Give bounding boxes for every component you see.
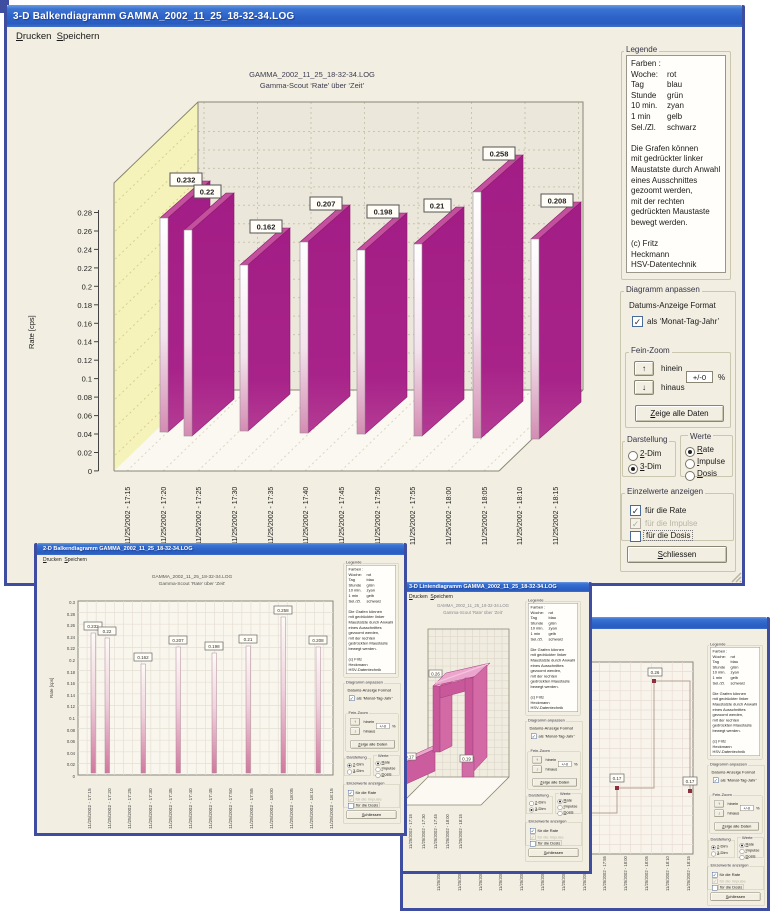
- svg-text:0.24: 0.24: [67, 635, 76, 640]
- svg-text:0.12: 0.12: [67, 704, 76, 709]
- svg-text:11/25/2002 - 17:20: 11/25/2002 - 17:20: [107, 788, 113, 829]
- svg-text:11/25/2002 - 17:25: 11/25/2002 - 17:25: [127, 788, 133, 829]
- svg-text:0.16: 0.16: [67, 681, 76, 686]
- svg-text:11/25/2002 - 18:10: 11/25/2002 - 18:10: [517, 487, 524, 545]
- svg-text:0.207: 0.207: [172, 638, 184, 643]
- svg-text:11/25/2002 - 18:15: 11/25/2002 - 18:15: [458, 813, 463, 849]
- svg-text:0.162: 0.162: [257, 223, 276, 232]
- svg-text:0.14: 0.14: [67, 693, 76, 698]
- svg-text:0.18: 0.18: [67, 670, 76, 675]
- svg-text:11/25/2002 - 17:30: 11/25/2002 - 17:30: [232, 487, 239, 545]
- svg-text:0.06: 0.06: [67, 739, 76, 744]
- svg-text:0.02: 0.02: [77, 449, 92, 458]
- svg-text:11/25/2002 - 17:30: 11/25/2002 - 17:30: [421, 813, 426, 849]
- svg-text:0.19: 0.19: [462, 757, 471, 762]
- svg-text:11/25/2002 - 18:00: 11/25/2002 - 18:00: [446, 487, 453, 545]
- svg-text:Gamma-Scout ‘Rate’ über ‘Zeit’: Gamma-Scout ‘Rate’ über ‘Zeit’: [443, 610, 503, 615]
- svg-text:GAMMA_2002_11_25_18-32-34.LOG: GAMMA_2002_11_25_18-32-34.LOG: [152, 574, 233, 580]
- svg-text:0.08: 0.08: [77, 393, 92, 402]
- svg-text:0.198: 0.198: [208, 644, 220, 649]
- svg-text:0: 0: [88, 467, 92, 476]
- svg-text:11/25/2002 - 17:55: 11/25/2002 - 17:55: [249, 788, 255, 829]
- svg-text:11/25/2002 - 17:55: 11/25/2002 - 17:55: [410, 487, 417, 545]
- svg-text:11/25/2002 - 18:15: 11/25/2002 - 18:15: [553, 487, 560, 545]
- svg-text:0.02: 0.02: [67, 762, 76, 767]
- svg-text:11/25/2002 - 17:40: 11/25/2002 - 17:40: [188, 788, 194, 829]
- svg-text:0.232: 0.232: [177, 176, 196, 185]
- svg-text:11/25/2002 - 18:05: 11/25/2002 - 18:05: [289, 788, 295, 829]
- svg-text:11/25/2002 - 17:45: 11/25/2002 - 17:45: [433, 813, 438, 849]
- svg-text:0.26: 0.26: [651, 670, 660, 675]
- svg-text:0.18: 0.18: [77, 301, 92, 310]
- svg-text:0.22: 0.22: [103, 629, 112, 634]
- svg-text:0.1: 0.1: [69, 716, 75, 721]
- svg-text:0.22: 0.22: [67, 646, 76, 651]
- svg-text:11/25/2002 - 18:00: 11/25/2002 - 18:00: [623, 855, 628, 891]
- svg-text:0.1: 0.1: [82, 375, 92, 384]
- svg-text:0.207: 0.207: [317, 200, 336, 209]
- svg-text:0.232: 0.232: [87, 624, 99, 629]
- svg-text:0: 0: [73, 774, 76, 779]
- svg-text:11/25/2002 - 18:00: 11/25/2002 - 18:00: [445, 813, 450, 849]
- svg-text:0.208: 0.208: [548, 197, 567, 206]
- svg-text:0.24: 0.24: [77, 245, 92, 254]
- svg-text:0.06: 0.06: [77, 412, 92, 421]
- svg-text:0.258: 0.258: [490, 150, 509, 159]
- svg-text:0.2: 0.2: [82, 282, 92, 291]
- svg-text:0.21: 0.21: [430, 202, 445, 211]
- svg-text:11/25/2002 - 17:15: 11/25/2002 - 17:15: [408, 813, 413, 849]
- svg-text:11/25/2002 - 17:55: 11/25/2002 - 17:55: [602, 855, 607, 891]
- svg-text:11/25/2002 - 18:15: 11/25/2002 - 18:15: [329, 788, 335, 829]
- svg-text:0.28: 0.28: [67, 612, 76, 617]
- svg-text:0.28: 0.28: [77, 209, 92, 218]
- svg-text:0.04: 0.04: [77, 430, 92, 439]
- svg-text:0.26: 0.26: [67, 623, 76, 628]
- svg-text:11/25/2002 - 17:45: 11/25/2002 - 17:45: [339, 487, 346, 545]
- svg-text:0.17: 0.17: [686, 779, 695, 784]
- svg-text:11/25/2002 - 17:15: 11/25/2002 - 17:15: [87, 788, 93, 829]
- svg-text:Gamma-Scout ‘Rate’ über ‘Zeit’: Gamma-Scout ‘Rate’ über ‘Zeit’: [159, 581, 226, 587]
- svg-text:0.2: 0.2: [69, 658, 75, 663]
- svg-text:0.208: 0.208: [312, 638, 324, 643]
- svg-text:0.198: 0.198: [374, 208, 393, 217]
- svg-text:11/25/2002 - 18:05: 11/25/2002 - 18:05: [482, 487, 489, 545]
- svg-text:0.12: 0.12: [77, 356, 92, 365]
- svg-text:11/25/2002 - 17:40: 11/25/2002 - 17:40: [303, 487, 310, 545]
- svg-text:0.22: 0.22: [77, 264, 92, 273]
- svg-text:Gamma-Scout ‘Rate’ über ‘Zeit’: Gamma-Scout ‘Rate’ über ‘Zeit’: [260, 81, 365, 90]
- svg-text:11/25/2002 - 17:50: 11/25/2002 - 17:50: [228, 788, 234, 829]
- svg-text:11/25/2002 - 17:25: 11/25/2002 - 17:25: [196, 487, 203, 545]
- svg-text:11/25/2002 - 17:50: 11/25/2002 - 17:50: [375, 487, 382, 545]
- svg-text:11/25/2002 - 17:35: 11/25/2002 - 17:35: [268, 487, 275, 545]
- svg-text:0.26: 0.26: [77, 227, 92, 236]
- svg-text:11/25/2002 - 18:10: 11/25/2002 - 18:10: [309, 788, 315, 829]
- svg-text:11/25/2002 - 18:10: 11/25/2002 - 18:10: [665, 855, 670, 891]
- svg-text:11/25/2002 - 18:05: 11/25/2002 - 18:05: [644, 855, 649, 891]
- svg-text:0.14: 0.14: [77, 338, 92, 347]
- svg-text:Rate [cps]: Rate [cps]: [27, 315, 36, 349]
- svg-text:0.08: 0.08: [67, 728, 76, 733]
- svg-text:11/25/2002 - 18:15: 11/25/2002 - 18:15: [686, 855, 691, 891]
- svg-text:0.21: 0.21: [244, 637, 253, 642]
- svg-text:0.26: 0.26: [431, 672, 440, 677]
- svg-text:0.16: 0.16: [77, 319, 92, 328]
- svg-text:11/25/2002 - 17:20: 11/25/2002 - 17:20: [161, 487, 168, 545]
- svg-text:11/25/2002 - 17:45: 11/25/2002 - 17:45: [208, 788, 214, 829]
- svg-text:11/25/2002 - 18:00: 11/25/2002 - 18:00: [269, 788, 275, 829]
- svg-text:0.3: 0.3: [69, 600, 75, 605]
- svg-text:Rate [cps]: Rate [cps]: [49, 678, 54, 698]
- svg-text:11/25/2002 - 17:30: 11/25/2002 - 17:30: [148, 788, 154, 829]
- svg-text:0.04: 0.04: [67, 751, 76, 756]
- svg-text:GAMMA_2002_11_25_18-32-34.LOG: GAMMA_2002_11_25_18-32-34.LOG: [249, 70, 375, 79]
- svg-text:0.17: 0.17: [613, 776, 622, 781]
- svg-text:0.258: 0.258: [277, 608, 289, 613]
- svg-text:GAMMA_2002_11_25_18-32-34.LOG: GAMMA_2002_11_25_18-32-34.LOG: [437, 603, 510, 608]
- svg-text:0.22: 0.22: [200, 188, 215, 197]
- svg-text:11/25/2002 - 17:35: 11/25/2002 - 17:35: [168, 788, 174, 829]
- svg-text:0.162: 0.162: [137, 655, 149, 660]
- svg-text:11/25/2002 - 17:15: 11/25/2002 - 17:15: [125, 487, 132, 545]
